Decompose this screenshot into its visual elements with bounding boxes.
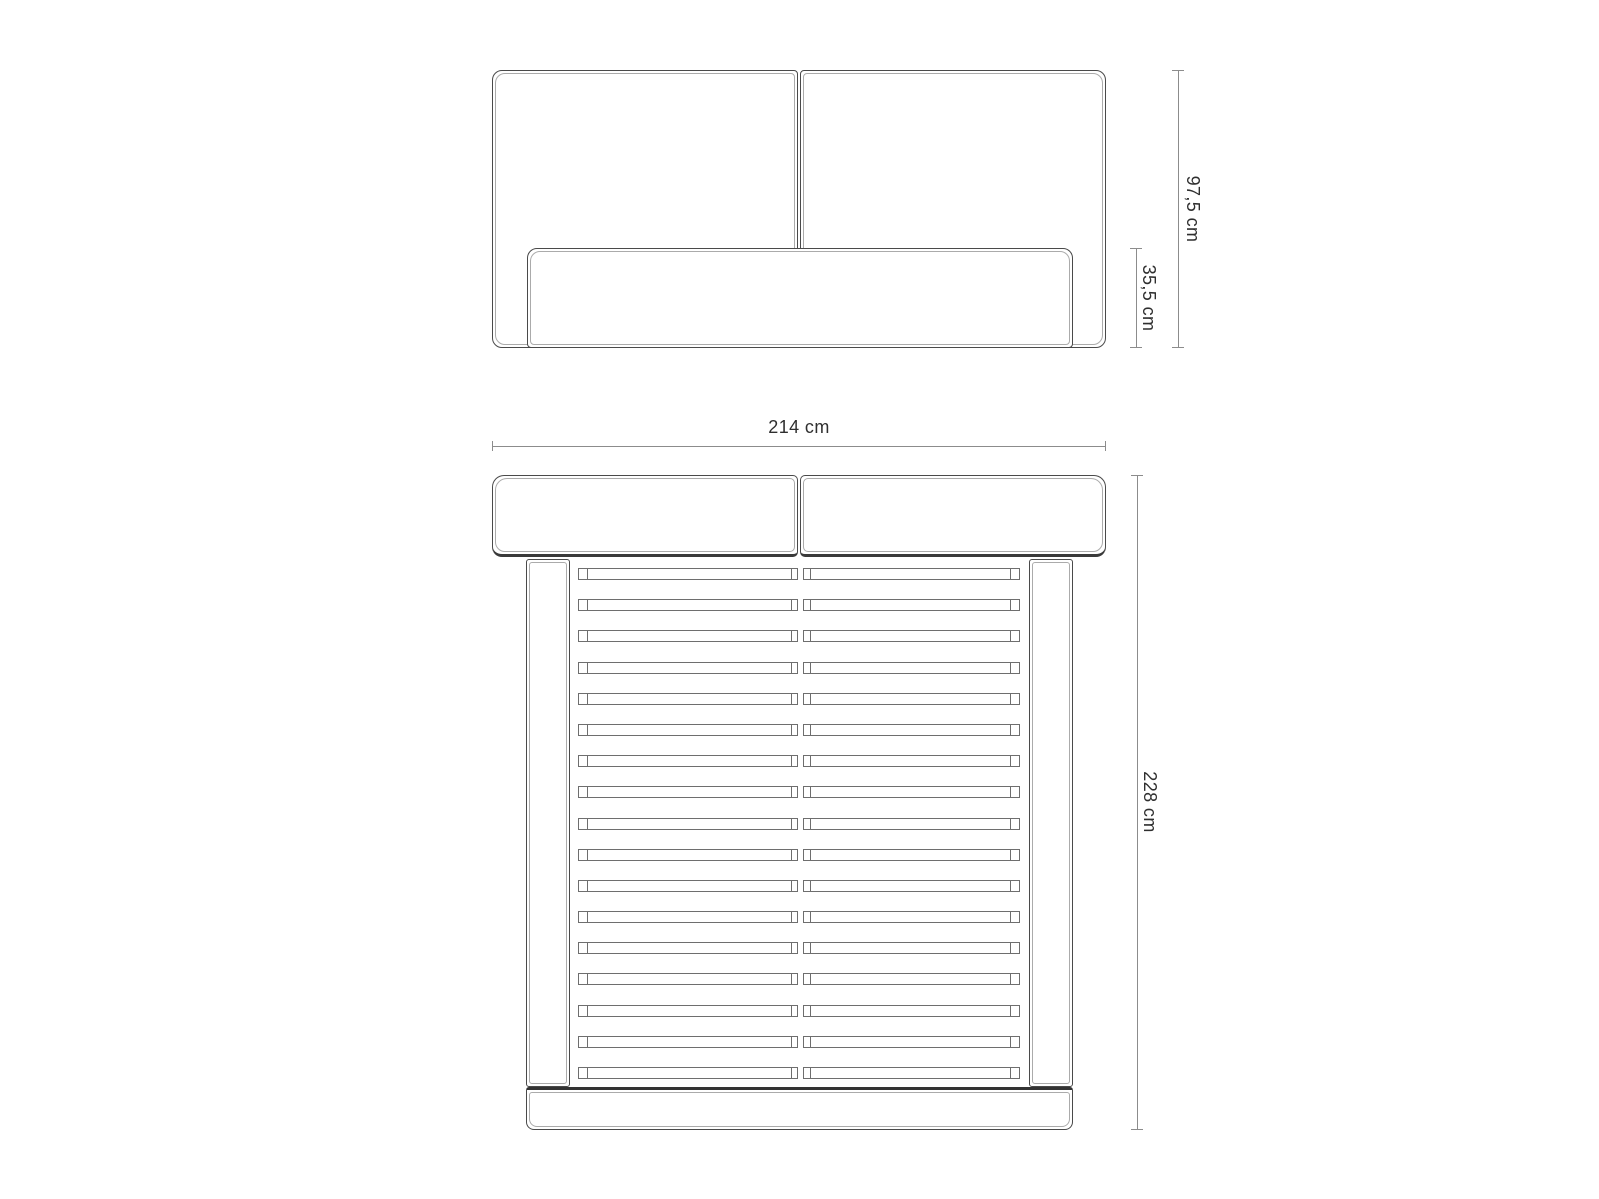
bed-slat-left xyxy=(578,849,798,861)
bed-slat-left xyxy=(578,568,798,580)
bed-slat-left xyxy=(578,630,798,642)
slat-row xyxy=(578,662,1020,674)
bed-slat-left xyxy=(578,1036,798,1048)
bed-slat-left xyxy=(578,973,798,985)
side-rail-left-seam xyxy=(529,562,567,1084)
bed-slat-right xyxy=(803,880,1020,892)
bed-slat-left xyxy=(578,911,798,923)
bed-slat-right xyxy=(803,849,1020,861)
slat-row xyxy=(578,849,1020,861)
slat-row xyxy=(578,942,1020,954)
bed-slat-left xyxy=(578,1067,798,1079)
cushion-right-seam xyxy=(803,478,1103,552)
side-rail-right-seam xyxy=(1032,562,1070,1084)
bed-slat-right xyxy=(803,755,1020,767)
bed-slat-left xyxy=(578,818,798,830)
dim-label-length: 228 cm xyxy=(1140,762,1160,842)
side-rail-left xyxy=(526,559,570,1087)
slat-row xyxy=(578,911,1020,923)
dim-label-base-height: 35,5 cm xyxy=(1139,258,1159,338)
dim-tick xyxy=(1131,1129,1143,1130)
dim-label-headboard-height: 97,5 cm xyxy=(1183,169,1203,249)
slat-row xyxy=(578,755,1020,767)
dim-tick xyxy=(1131,475,1143,476)
bed-base-front-panel xyxy=(527,248,1073,348)
bed-slat-right xyxy=(803,818,1020,830)
bed-slat-right xyxy=(803,786,1020,798)
bed-slat-left xyxy=(578,880,798,892)
slat-row xyxy=(578,973,1020,985)
slat-row xyxy=(578,786,1020,798)
bed-slat-right xyxy=(803,911,1020,923)
bed-slat-left xyxy=(578,1005,798,1017)
bed-base-front-seam xyxy=(530,251,1070,345)
dim-line-headboard-height xyxy=(1178,70,1179,348)
bed-slat-right xyxy=(803,599,1020,611)
bed-slat-right xyxy=(803,630,1020,642)
dim-tick xyxy=(1105,441,1106,451)
bed-slat-right xyxy=(803,724,1020,736)
side-rail-right xyxy=(1029,559,1073,1087)
bed-slat-right xyxy=(803,568,1020,580)
slat-row xyxy=(578,693,1020,705)
bed-dimensions-diagram: 97,5 cm 35,5 cm 214 cm xyxy=(0,0,1599,1199)
bed-slat-left xyxy=(578,724,798,736)
slat-row xyxy=(578,1036,1020,1048)
dim-label-width: 214 cm xyxy=(739,417,859,437)
slat-row xyxy=(578,1005,1020,1017)
dim-tick xyxy=(492,441,493,451)
slat-row xyxy=(578,880,1020,892)
dim-tick xyxy=(1172,70,1184,71)
footboard-seam xyxy=(529,1092,1070,1127)
dim-line-base-height xyxy=(1136,248,1137,348)
bed-slat-right xyxy=(803,1067,1020,1079)
bed-slat-left xyxy=(578,693,798,705)
bed-slat-right xyxy=(803,662,1020,674)
slat-row xyxy=(578,724,1020,736)
cushion-left-seam xyxy=(495,478,795,552)
slat-row xyxy=(578,630,1020,642)
bed-slat-left xyxy=(578,786,798,798)
bed-slat-left xyxy=(578,599,798,611)
dim-line-length xyxy=(1137,475,1138,1130)
slat-row xyxy=(578,1067,1020,1079)
footboard-panel xyxy=(526,1087,1073,1130)
bed-slat-left xyxy=(578,755,798,767)
bed-slat-right xyxy=(803,942,1020,954)
bed-slat-right xyxy=(803,1005,1020,1017)
dim-line-width xyxy=(492,446,1106,447)
bed-slats xyxy=(578,568,1020,1079)
bed-slat-right xyxy=(803,693,1020,705)
slat-row xyxy=(578,599,1020,611)
dim-tick xyxy=(1130,347,1142,348)
bed-slat-left xyxy=(578,662,798,674)
dim-tick xyxy=(1172,347,1184,348)
dim-tick xyxy=(1130,248,1142,249)
headboard-cushion-right-top xyxy=(800,475,1106,557)
bed-slat-right xyxy=(803,973,1020,985)
slat-row xyxy=(578,568,1020,580)
slat-row xyxy=(578,818,1020,830)
bed-slat-right xyxy=(803,1036,1020,1048)
headboard-cushion-left-top xyxy=(492,475,798,557)
bed-slat-left xyxy=(578,942,798,954)
